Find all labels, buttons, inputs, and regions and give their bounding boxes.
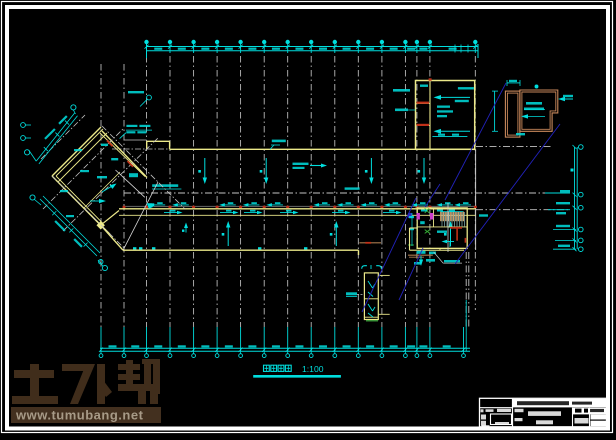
svg-text:1:100: 1:100 (302, 364, 324, 374)
svg-text:www.tumubang.net: www.tumubang.net (15, 408, 144, 423)
